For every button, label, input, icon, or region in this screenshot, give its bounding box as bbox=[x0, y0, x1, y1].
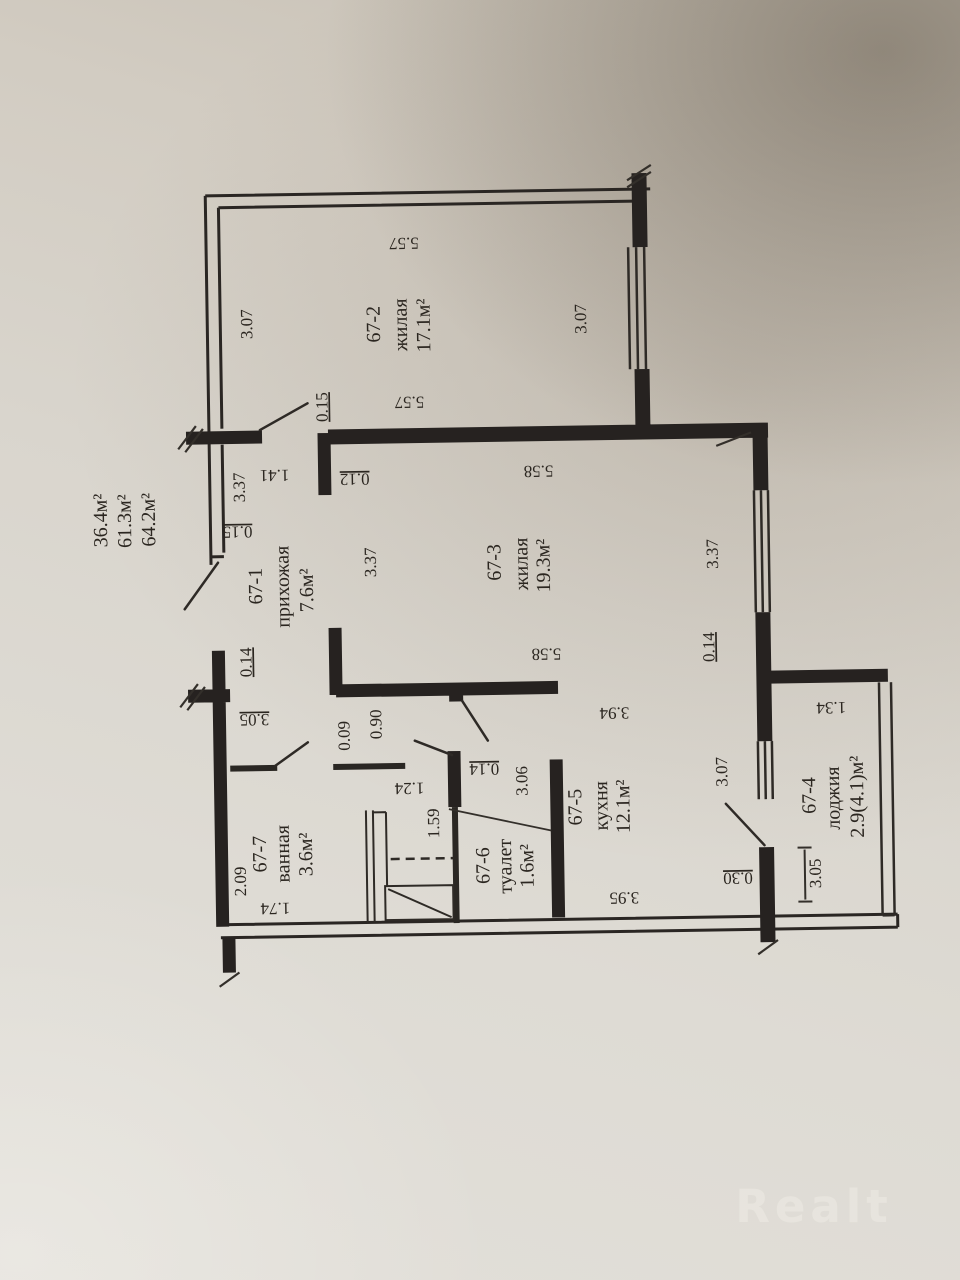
dim-bath-174: 1.74 bbox=[260, 899, 291, 918]
dim-hall-length: 3.37 bbox=[229, 472, 248, 503]
room1-area: 7.6м² bbox=[296, 568, 319, 612]
room7-number: 67-7 bbox=[249, 836, 272, 873]
room7-area: 3.6м² bbox=[295, 832, 318, 876]
door-leaves bbox=[182, 396, 765, 854]
room4-area: 2.9(4.1)м² bbox=[846, 756, 869, 838]
realt-watermark: Realt bbox=[735, 1180, 892, 1233]
room4-name: лоджия bbox=[822, 766, 845, 830]
floorplan-svg: 5.57 3.07 3.07 5.57 3.37 1.41 0.15 0.15 … bbox=[0, 0, 960, 1280]
dim-room2-bottom: 5.57 bbox=[394, 393, 425, 412]
dim-kitchen-306: 3.06 bbox=[512, 766, 531, 796]
room3-name: жилая bbox=[510, 538, 533, 592]
dim-hall-305: 3.05 bbox=[239, 710, 269, 729]
dim-door-090: 0.90 bbox=[366, 709, 385, 739]
room1-name: прихожая bbox=[271, 546, 294, 628]
room3-area: 19.3м² bbox=[532, 539, 555, 593]
loggia-outline bbox=[879, 682, 895, 915]
dim-room3-bottom: 5.58 bbox=[531, 644, 561, 663]
dim-loggia-134: 1.34 bbox=[816, 698, 847, 717]
leader-lines bbox=[449, 808, 551, 833]
dim-opening-394: 3.94 bbox=[599, 703, 630, 722]
dim-room2-right: 3.07 bbox=[571, 303, 590, 334]
walls-main bbox=[184, 424, 892, 973]
dim-wall-030: 0.30 bbox=[723, 868, 753, 887]
dim-toilet-124: 1.24 bbox=[394, 779, 425, 798]
dim-wall-012: 0.12 bbox=[340, 469, 370, 488]
dim-room3-left: 3.37 bbox=[361, 547, 380, 578]
dim-hall-door: 1.41 bbox=[260, 466, 290, 485]
photographed-floorplan: 5.57 3.07 3.07 5.57 3.37 1.41 0.15 0.15 … bbox=[0, 0, 960, 1280]
room5-name: кухня bbox=[590, 781, 613, 831]
room5-area: 12.1м² bbox=[612, 779, 635, 833]
room5-number: 67-5 bbox=[564, 789, 587, 826]
dim-wall-014-left: 0.14 bbox=[236, 647, 255, 678]
dim-room3-top: 5.58 bbox=[524, 462, 554, 481]
room2-name: жилая bbox=[389, 298, 412, 352]
dim-bath-209: 2.09 bbox=[231, 866, 250, 896]
floorplan: 5.57 3.07 3.07 5.57 3.37 1.41 0.15 0.15 … bbox=[84, 161, 898, 988]
room4-number: 67-4 bbox=[798, 777, 821, 814]
room6-name: туалет bbox=[494, 838, 517, 893]
room7-name: ванная bbox=[272, 825, 295, 883]
dim-toilet-159: 1.59 bbox=[424, 808, 443, 838]
room2-area: 17.1м² bbox=[412, 298, 435, 352]
dim-wall-015-top: 0.15 bbox=[312, 392, 331, 422]
dim-room2-top: 5.57 bbox=[388, 234, 419, 253]
room6-number: 67-6 bbox=[472, 847, 495, 884]
dim-loggia-305: 3.05 bbox=[806, 858, 825, 888]
windows bbox=[628, 245, 773, 801]
dim-kitchen-307: 3.07 bbox=[712, 756, 731, 787]
dim-wall-014-right: 0.14 bbox=[699, 632, 718, 663]
area-summary-3: 64.2м² bbox=[137, 493, 160, 547]
area-summary-1: 36.4м² bbox=[90, 494, 113, 548]
room1-number: 67-1 bbox=[245, 568, 268, 605]
dim-room2-left: 3.07 bbox=[237, 309, 256, 340]
dim-part-009: 0.09 bbox=[334, 721, 353, 751]
dim-wall-015-left: 0.15 bbox=[223, 522, 253, 541]
room3-number: 67-3 bbox=[483, 544, 506, 581]
room2-number: 67-2 bbox=[363, 306, 386, 343]
area-summary-2: 61.3м² bbox=[114, 494, 137, 548]
room6-area: 1.6м² bbox=[516, 844, 539, 888]
dashed-opening bbox=[391, 858, 454, 859]
dim-wall-014-toilet: 0.14 bbox=[469, 759, 500, 778]
dim-kitchen-395: 3.95 bbox=[609, 888, 639, 907]
dim-room3-right: 3.37 bbox=[703, 538, 722, 569]
